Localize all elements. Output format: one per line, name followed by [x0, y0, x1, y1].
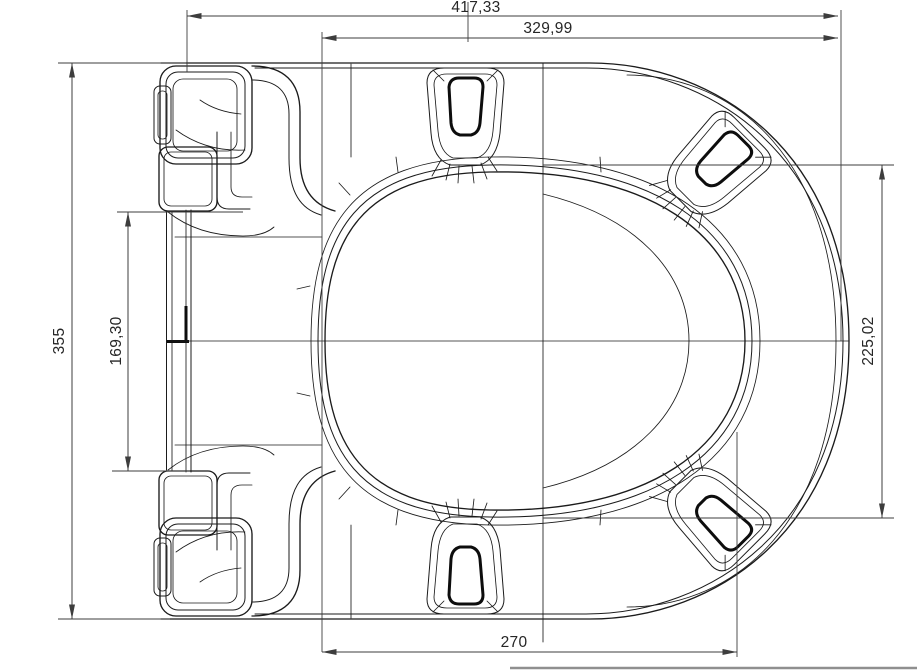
seam-lines — [167, 63, 849, 642]
dim-label-height-overall: 355 — [51, 328, 68, 355]
dim-label-height-front: 225,02 — [860, 316, 877, 365]
dimension-width-inner: 329,99 — [322, 20, 838, 652]
dimension-width-bottom: 270 — [322, 432, 737, 657]
ring-facet-ticks — [297, 157, 601, 289]
dim-label-width-overall: 417,33 — [451, 0, 500, 16]
seat-lower-half-details — [154, 393, 777, 618]
dim-label-width-bottom: 270 — [501, 634, 528, 651]
seat-upper-half-details — [154, 64, 777, 289]
dim-label-width-inner: 329,99 — [523, 20, 572, 37]
dim-label-hinge-spacing: 169,30 — [108, 316, 125, 365]
drawing-sheet: 417,33 329,99 355 169,30 225,02 270 — [0, 0, 917, 672]
cad-drawing: 417,33 329,99 355 169,30 225,02 270 — [0, 0, 917, 672]
dimension-width-overall: 417,33 — [187, 0, 841, 341]
hinge-top — [154, 64, 351, 237]
